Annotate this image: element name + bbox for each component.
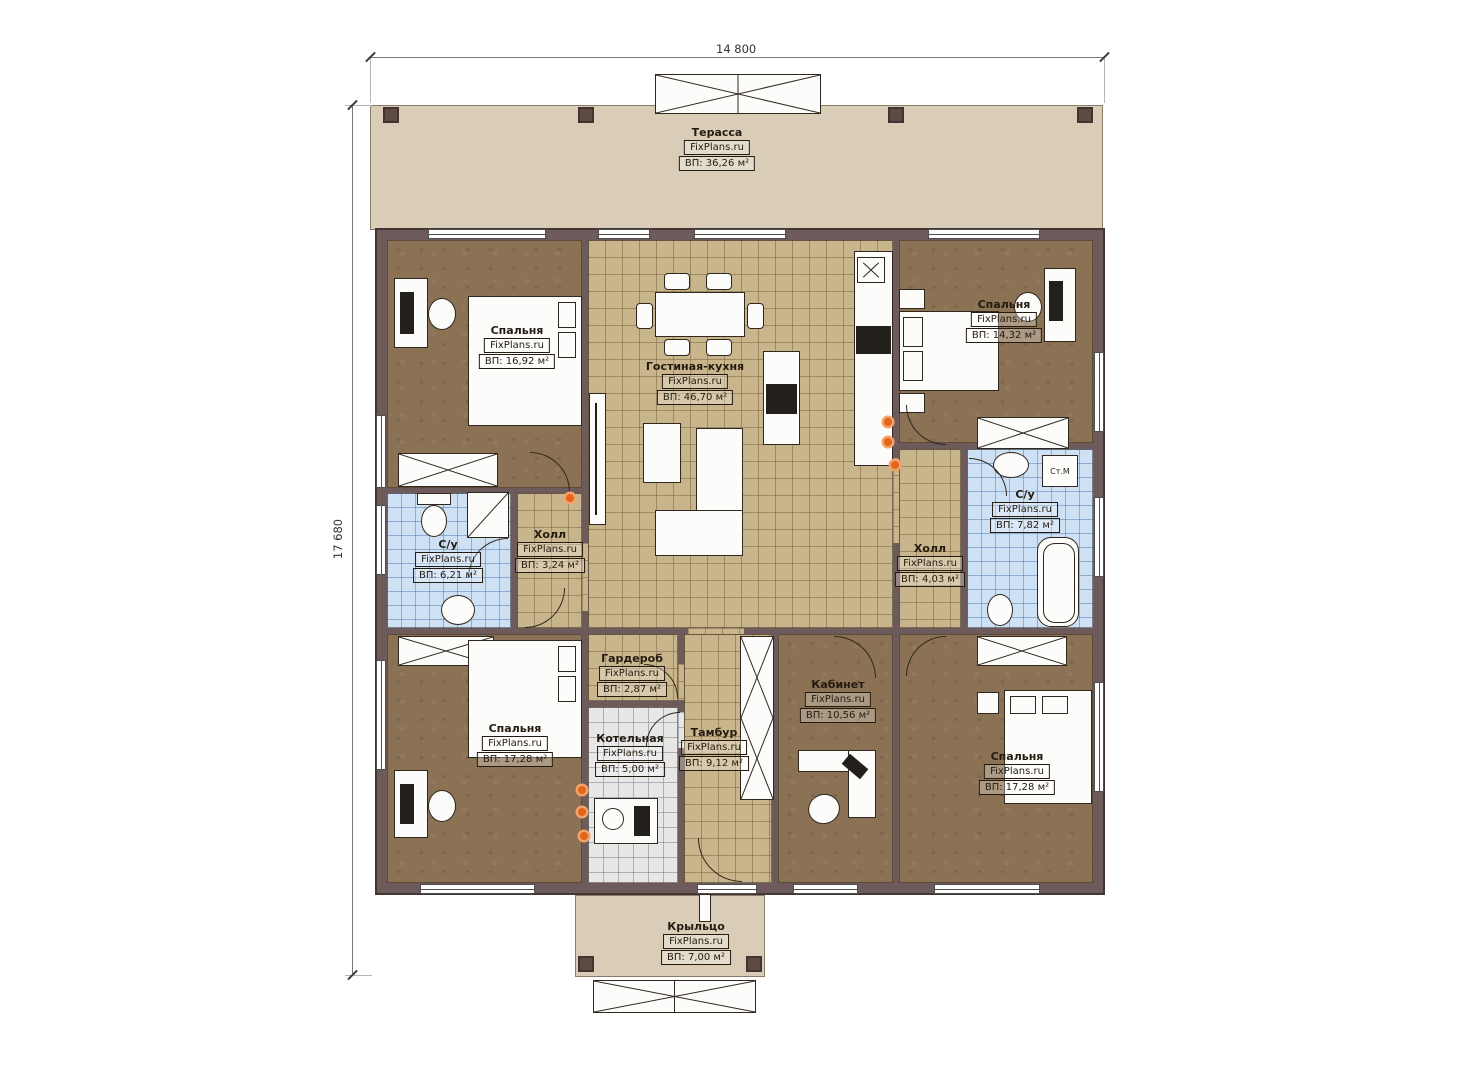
room-label-bath-right: С/у FixPlans.ru ВП: 7,82 м²	[990, 488, 1060, 533]
room-label-tambur: Тамбур FixPlans.ru ВП: 9,12 м²	[679, 726, 749, 771]
area-box: ВП: 46,70 м²	[657, 390, 733, 405]
area-box: ВП: 9,12 м²	[679, 756, 749, 771]
room-label-terrace: Терасса FixPlans.ru ВП: 36,26 м²	[679, 126, 755, 171]
room-label-porch: Крыльцо FixPlans.ru ВП: 7,00 м²	[661, 920, 731, 965]
watermark-box: FixPlans.ru	[663, 934, 729, 949]
room-name: Гостиная-кухня	[646, 360, 744, 373]
chair	[428, 790, 456, 822]
porch-steps	[593, 980, 756, 1013]
sofa-chaise	[655, 510, 743, 556]
area-box: ВП: 16,92 м²	[479, 354, 555, 369]
window	[934, 884, 1040, 894]
boiler-burner	[602, 808, 624, 830]
room-name: Гардероб	[601, 652, 663, 665]
stove	[856, 326, 891, 354]
room-name: Терасса	[692, 126, 743, 139]
window	[420, 884, 535, 894]
outlet-marker	[884, 438, 892, 446]
cooktop	[766, 384, 797, 414]
outlet-marker	[578, 786, 586, 794]
pillow	[1010, 696, 1036, 714]
room-label-office: Кабинет FixPlans.ru ВП: 10,56 м²	[800, 678, 876, 723]
room-label-bedroom-tl: Спальня FixPlans.ru ВП: 16,92 м²	[479, 324, 555, 369]
opening-hall-right	[893, 458, 899, 543]
boiler-panel	[634, 806, 650, 836]
area-box: ВП: 17,28 м²	[979, 780, 1055, 795]
window	[928, 229, 1040, 239]
area-box: ВП: 7,82 м²	[990, 518, 1060, 533]
room-name: Спальня	[489, 722, 542, 735]
outlet-marker	[578, 808, 586, 816]
watermark-box: FixPlans.ru	[984, 764, 1050, 779]
monitor	[400, 784, 414, 824]
wardrobe-cabinet	[977, 636, 1067, 666]
window	[793, 884, 858, 894]
hall-cabinet	[740, 636, 774, 800]
pillow	[903, 317, 923, 347]
pillow	[558, 676, 576, 702]
area-box: ВП: 7,00 м²	[661, 950, 731, 965]
toilet-tank	[417, 493, 451, 505]
chair	[664, 273, 690, 290]
area-box: ВП: 17,28 м²	[477, 752, 553, 767]
room-name: Спальня	[491, 324, 544, 337]
chair	[706, 339, 732, 356]
room-label-wardrobe: Гардероб FixPlans.ru ВП: 2,87 м²	[597, 652, 667, 697]
room-label-bedroom-tr: Спальня FixPlans.ru ВП: 14,32 м²	[966, 298, 1042, 343]
coffee-table	[643, 423, 681, 483]
room-name: Спальня	[991, 750, 1044, 763]
outlet-marker	[891, 461, 899, 469]
chair	[636, 303, 653, 329]
watermark-box: FixPlans.ru	[681, 740, 747, 755]
nightstand	[899, 289, 925, 309]
terrace-column	[383, 107, 399, 123]
kitchen-counter	[854, 251, 893, 466]
chair	[428, 298, 456, 330]
watermark-box: FixPlans.ru	[415, 552, 481, 567]
shower	[467, 492, 509, 538]
room-name: С/у	[438, 538, 457, 551]
watermark-box: FixPlans.ru	[482, 736, 548, 751]
area-box: ВП: 10,56 м²	[800, 708, 876, 723]
wardrobe-cabinet	[398, 453, 498, 487]
porch-column	[746, 956, 762, 972]
room-label-boiler: Котельная FixPlans.ru ВП: 5,00 м²	[595, 732, 665, 777]
outlet-marker	[580, 832, 588, 840]
room-name: Кабинет	[811, 678, 864, 691]
sink	[441, 595, 475, 625]
room-name: Спальня	[978, 298, 1031, 311]
window	[1094, 497, 1104, 577]
area-box: ВП: 36,26 м²	[679, 156, 755, 171]
terrace-column	[578, 107, 594, 123]
kitchen-sink	[857, 257, 885, 283]
window	[428, 229, 546, 239]
room-label-bath-left: С/у FixPlans.ru ВП: 6,21 м²	[413, 538, 483, 583]
dining-table	[655, 292, 745, 337]
watermark-box: FixPlans.ru	[484, 338, 550, 353]
area-box: ВП: 3,24 м²	[515, 558, 585, 573]
window	[376, 660, 386, 770]
room-name: Холл	[534, 528, 566, 541]
monitor	[1049, 281, 1063, 321]
dim-ext-line	[1104, 58, 1105, 103]
washing-machine: Ст.М	[1042, 455, 1078, 487]
watermark-box: FixPlans.ru	[992, 502, 1058, 517]
watermark-box: FixPlans.ru	[897, 556, 963, 571]
pillow	[1042, 696, 1068, 714]
watermark-box: FixPlans.ru	[662, 374, 728, 389]
room-label-hall-left: Холл FixPlans.ru ВП: 3,24 м²	[515, 528, 585, 573]
outlet-marker	[566, 494, 574, 502]
window	[598, 229, 650, 239]
room-name: Котельная	[596, 732, 663, 745]
room-name: Крыльцо	[667, 920, 725, 933]
opening-living-tambur	[688, 628, 744, 634]
dim-line-top	[370, 57, 1105, 58]
monitor	[400, 292, 414, 334]
dim-width-label: 14 800	[716, 42, 756, 56]
terrace-steps	[655, 74, 821, 114]
room-label-living: Гостиная-кухня FixPlans.ru ВП: 46,70 м²	[646, 360, 744, 405]
terrace-column	[1077, 107, 1093, 123]
opening-wardrobe	[678, 664, 684, 700]
pillow	[558, 646, 576, 672]
room-label-hall-right: Холл FixPlans.ru ВП: 4,03 м²	[895, 542, 965, 587]
tv-unit	[589, 393, 606, 525]
watermark-box: FixPlans.ru	[517, 542, 583, 557]
watermark-box: FixPlans.ru	[684, 140, 750, 155]
floor-plan: 14 800 17 680	[0, 0, 1473, 1080]
watermark-box: FixPlans.ru	[599, 666, 665, 681]
window	[1094, 682, 1104, 792]
dim-ext-line	[370, 58, 371, 103]
watermark-box: FixPlans.ru	[597, 746, 663, 761]
window	[376, 415, 386, 488]
dim-line-left	[352, 105, 353, 975]
chair	[664, 339, 690, 356]
outlet-marker	[884, 418, 892, 426]
chair	[747, 303, 764, 329]
area-box: ВП: 4,03 м²	[895, 572, 965, 587]
room-name: Холл	[914, 542, 946, 555]
pillow	[558, 302, 576, 328]
dim-height-label: 17 680	[331, 519, 345, 559]
pillow	[903, 351, 923, 381]
tv	[595, 403, 597, 515]
area-box: ВП: 14,32 м²	[966, 328, 1042, 343]
entrance-door-opening	[697, 884, 757, 894]
window	[1094, 352, 1104, 432]
porch-column	[578, 956, 594, 972]
area-box: ВП: 2,87 м²	[597, 682, 667, 697]
toilet	[987, 594, 1013, 626]
room-hall-right	[899, 449, 961, 628]
room-name: С/у	[1015, 488, 1034, 501]
area-box: ВП: 5,00 м²	[595, 762, 665, 777]
window	[376, 505, 386, 575]
terrace-door	[694, 229, 786, 239]
room-label-bedroom-br: Спальня FixPlans.ru ВП: 17,28 м²	[979, 750, 1055, 795]
pillow	[558, 332, 576, 358]
watermark-box: FixPlans.ru	[971, 312, 1037, 327]
terrace-column	[888, 107, 904, 123]
room-name: Тамбур	[691, 726, 738, 739]
toilet	[421, 505, 447, 537]
bathtub-inner	[1043, 543, 1075, 623]
room-label-bedroom-bl: Спальня FixPlans.ru ВП: 17,28 м²	[477, 722, 553, 767]
nightstand	[977, 692, 999, 714]
area-box: ВП: 6,21 м²	[413, 568, 483, 583]
wardrobe-cabinet	[977, 417, 1069, 449]
entrance-door-leaf	[699, 894, 711, 922]
watermark-box: FixPlans.ru	[805, 692, 871, 707]
chair	[706, 273, 732, 290]
